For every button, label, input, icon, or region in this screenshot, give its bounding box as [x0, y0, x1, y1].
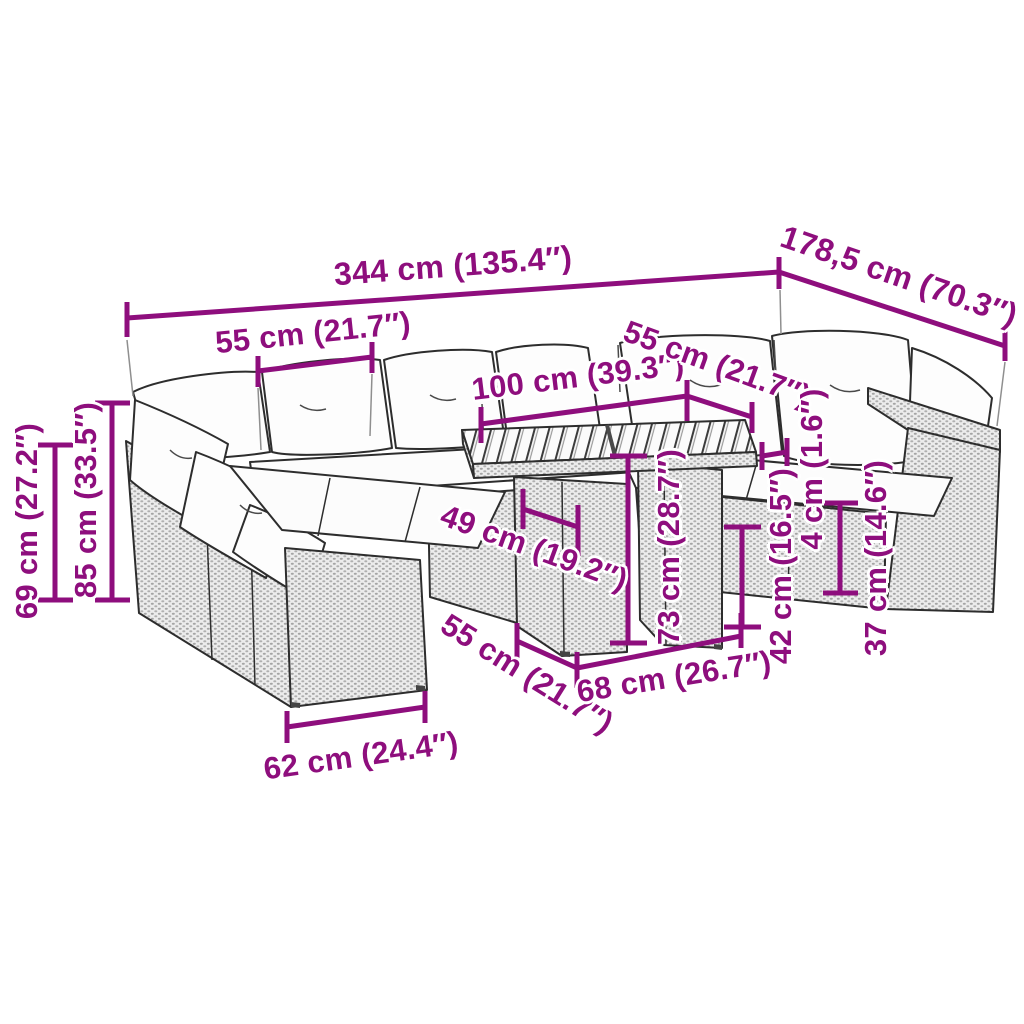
- dim-label-front-panel-height: 37 cm (14.6″): [858, 460, 894, 656]
- dim-label-tabletop-thickness: 4 cm (1.6″): [794, 388, 830, 549]
- dimension-diagram: 344 cm (135.4″) 178,5 cm (70.3″) 55 cm (…: [0, 0, 1024, 1024]
- dim-label-table-height: 73 cm (28.7″): [651, 449, 687, 645]
- left-front-panel: [285, 548, 427, 707]
- dim-label-total-height: 85 cm (33.5″): [68, 402, 104, 598]
- dim-label-backrest-height: 69 cm (27.2″): [9, 423, 45, 619]
